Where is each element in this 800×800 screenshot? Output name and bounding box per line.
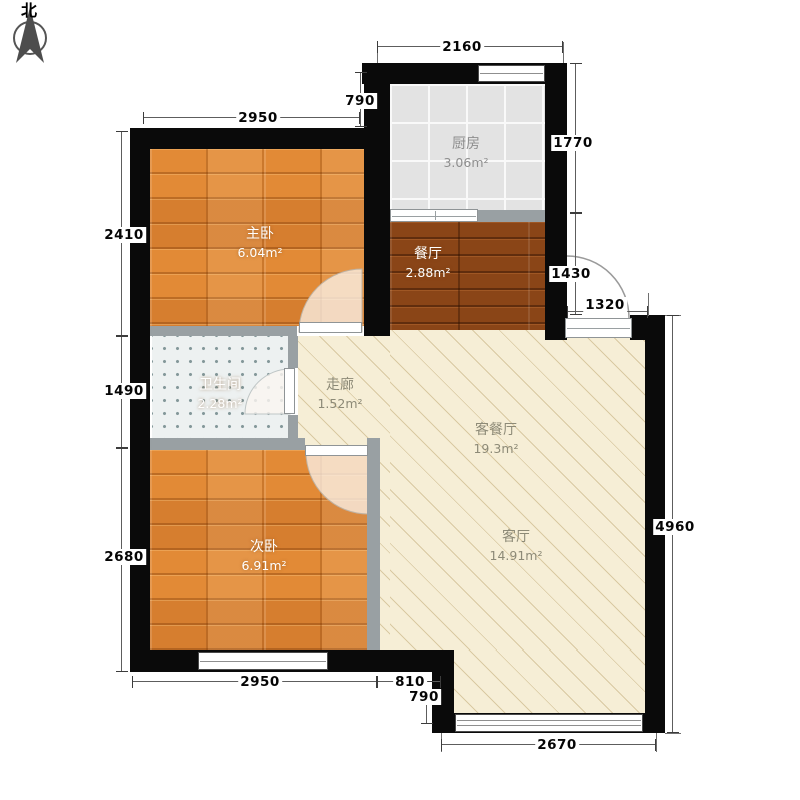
dim-label-right-1430: 1430 — [549, 266, 593, 282]
north-label: 北 — [21, 0, 37, 21]
living-room-floor — [390, 330, 645, 650]
dim-label-top-2950: 2950 — [236, 110, 280, 126]
dim-label-bottom-2950: 2950 — [238, 674, 282, 690]
master-bedroom-area: 6.04m² — [237, 244, 282, 262]
wall-left — [130, 128, 150, 672]
second-bedroom-label: 次卧 6.91m² — [241, 537, 286, 575]
partition-bathroom-right-lower — [288, 415, 298, 438]
living-dining-area: 19.3m² — [473, 440, 518, 458]
master-bedroom-label: 主卧 6.04m² — [237, 224, 282, 262]
dining-room-area: 2.88m² — [405, 264, 450, 282]
dim-ext-1320-right — [648, 293, 649, 316]
kitchen-sliding-door — [390, 209, 478, 222]
bathroom-area: 2.28m² — [197, 395, 242, 413]
living-room-window — [455, 714, 643, 732]
partition-bedroom-top-left — [150, 438, 305, 450]
dim-label-left-1490: 1490 — [102, 383, 146, 399]
kitchen-window — [478, 65, 545, 82]
living-room-floor-strip — [380, 448, 390, 650]
wall-kitchen-right — [545, 63, 567, 340]
bathroom-door-leaf — [284, 368, 295, 414]
kitchen-sliding-door-seam — [435, 211, 436, 220]
dim-ext-2160-right — [563, 42, 564, 63]
kitchen-label: 厨房 3.06m² — [443, 134, 488, 172]
dim-label-bottom-790: 790 — [407, 689, 441, 705]
dim-label-left-2410: 2410 — [102, 227, 146, 243]
second-bedroom-name: 次卧 — [241, 537, 286, 557]
dim-label-right-1320: 1320 — [583, 297, 627, 313]
second-bedroom-window-pane-line — [200, 661, 326, 662]
kitchen-name: 厨房 — [443, 134, 488, 154]
living-room-floor-lower — [454, 650, 645, 715]
floor-plan: 厨房 3.06m² 主卧 6.04m² 餐厅 2.88m² 卫生间 2.28m²… — [0, 0, 800, 800]
living-room-window-pane-line-2 — [457, 725, 641, 726]
living-dining-name: 客餐厅 — [473, 420, 518, 440]
kitchen-sliding-door-track — [392, 216, 476, 217]
living-room-window-pane-line-1 — [457, 720, 641, 721]
partition-master-bottom — [150, 326, 297, 336]
corridor-name: 走廊 — [317, 375, 362, 395]
bathroom-name: 卫生间 — [197, 375, 242, 395]
dim-label-right-1770: 1770 — [551, 135, 595, 151]
dim-label-top-790: 790 — [343, 93, 377, 109]
corridor-area: 1.52m² — [317, 395, 362, 413]
dim-ext-4960-bottom — [665, 733, 681, 734]
second-bedroom-window — [198, 652, 328, 670]
living-room-label: 客厅 14.91m² — [490, 527, 543, 565]
master-bedroom-door-leaf — [299, 322, 362, 333]
dining-room-name: 餐厅 — [405, 244, 450, 264]
partition-kitchen-dining — [478, 210, 545, 222]
entry-door-leaf — [565, 318, 632, 338]
dim-ext-2670-right — [656, 733, 657, 752]
dim-label-bottom-810: 810 — [393, 674, 427, 690]
entry-door-seam — [567, 328, 630, 329]
kitchen-area: 3.06m² — [443, 154, 488, 172]
partition-bedroom-top-right — [367, 438, 380, 450]
partition-bathroom-right-upper — [288, 336, 298, 368]
second-bedroom-door-leaf — [305, 445, 368, 456]
second-bedroom-area: 6.91m² — [241, 557, 286, 575]
living-dining-label: 客餐厅 19.3m² — [473, 420, 518, 458]
living-room-name: 客厅 — [490, 527, 543, 547]
living-room-area: 14.91m² — [490, 547, 543, 565]
dim-label-bottom-2670: 2670 — [535, 737, 579, 753]
wall-master-top — [130, 128, 390, 149]
bathroom-label: 卫生间 2.28m² — [197, 375, 242, 413]
dim-label-right-4960: 4960 — [653, 519, 697, 535]
corridor-label: 走廊 1.52m² — [317, 375, 362, 413]
dim-label-top-2160: 2160 — [440, 39, 484, 55]
master-bedroom-name: 主卧 — [237, 224, 282, 244]
dim-label-left-2680: 2680 — [102, 549, 146, 565]
dim-line-right-1430 — [575, 213, 576, 315]
dining-room-label: 餐厅 2.88m² — [405, 244, 450, 282]
partition-bedroom-right — [367, 450, 380, 650]
kitchen-window-pane-line — [480, 73, 543, 74]
